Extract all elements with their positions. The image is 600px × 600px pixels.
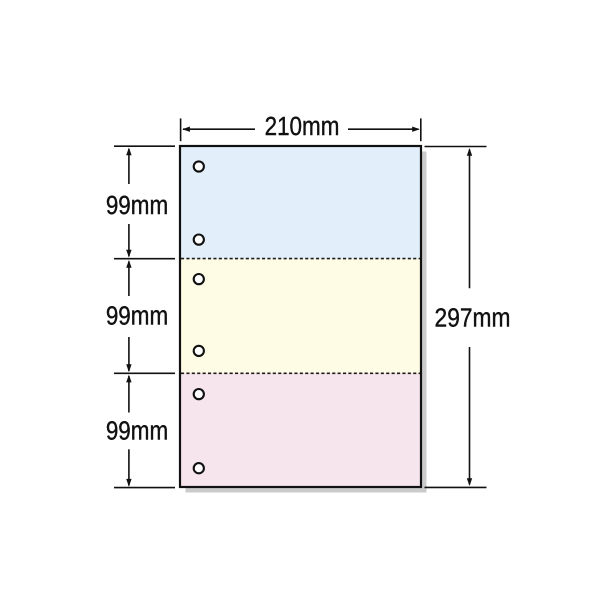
svg-text:99mm: 99mm bbox=[106, 302, 168, 331]
svg-text:210mm: 210mm bbox=[265, 113, 340, 142]
svg-text:99mm: 99mm bbox=[106, 192, 168, 221]
svg-text:99mm: 99mm bbox=[106, 417, 168, 446]
svg-text:297mm: 297mm bbox=[435, 304, 511, 332]
